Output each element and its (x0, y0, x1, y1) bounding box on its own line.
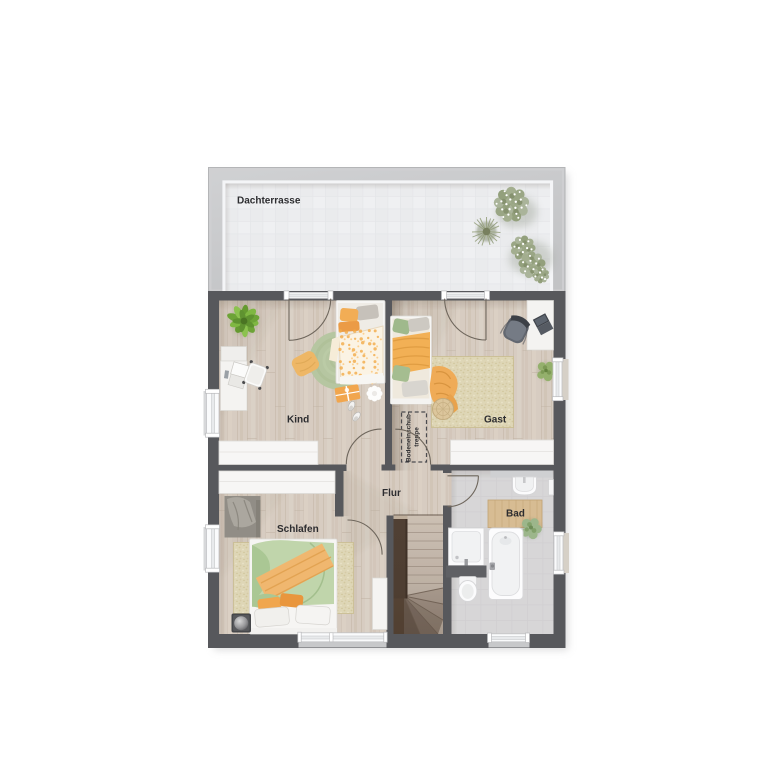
svg-text:Gast: Gast (484, 415, 507, 426)
svg-text:Dachterrasse: Dachterrasse (237, 196, 301, 207)
svg-text:Schlafen: Schlafen (277, 524, 319, 535)
svg-text:Flur: Flur (382, 488, 401, 499)
svg-text:Kind: Kind (287, 415, 309, 426)
svg-text:Bodeneinschub-: Bodeneinschub- (406, 412, 413, 462)
svg-text:Bad: Bad (506, 509, 525, 520)
